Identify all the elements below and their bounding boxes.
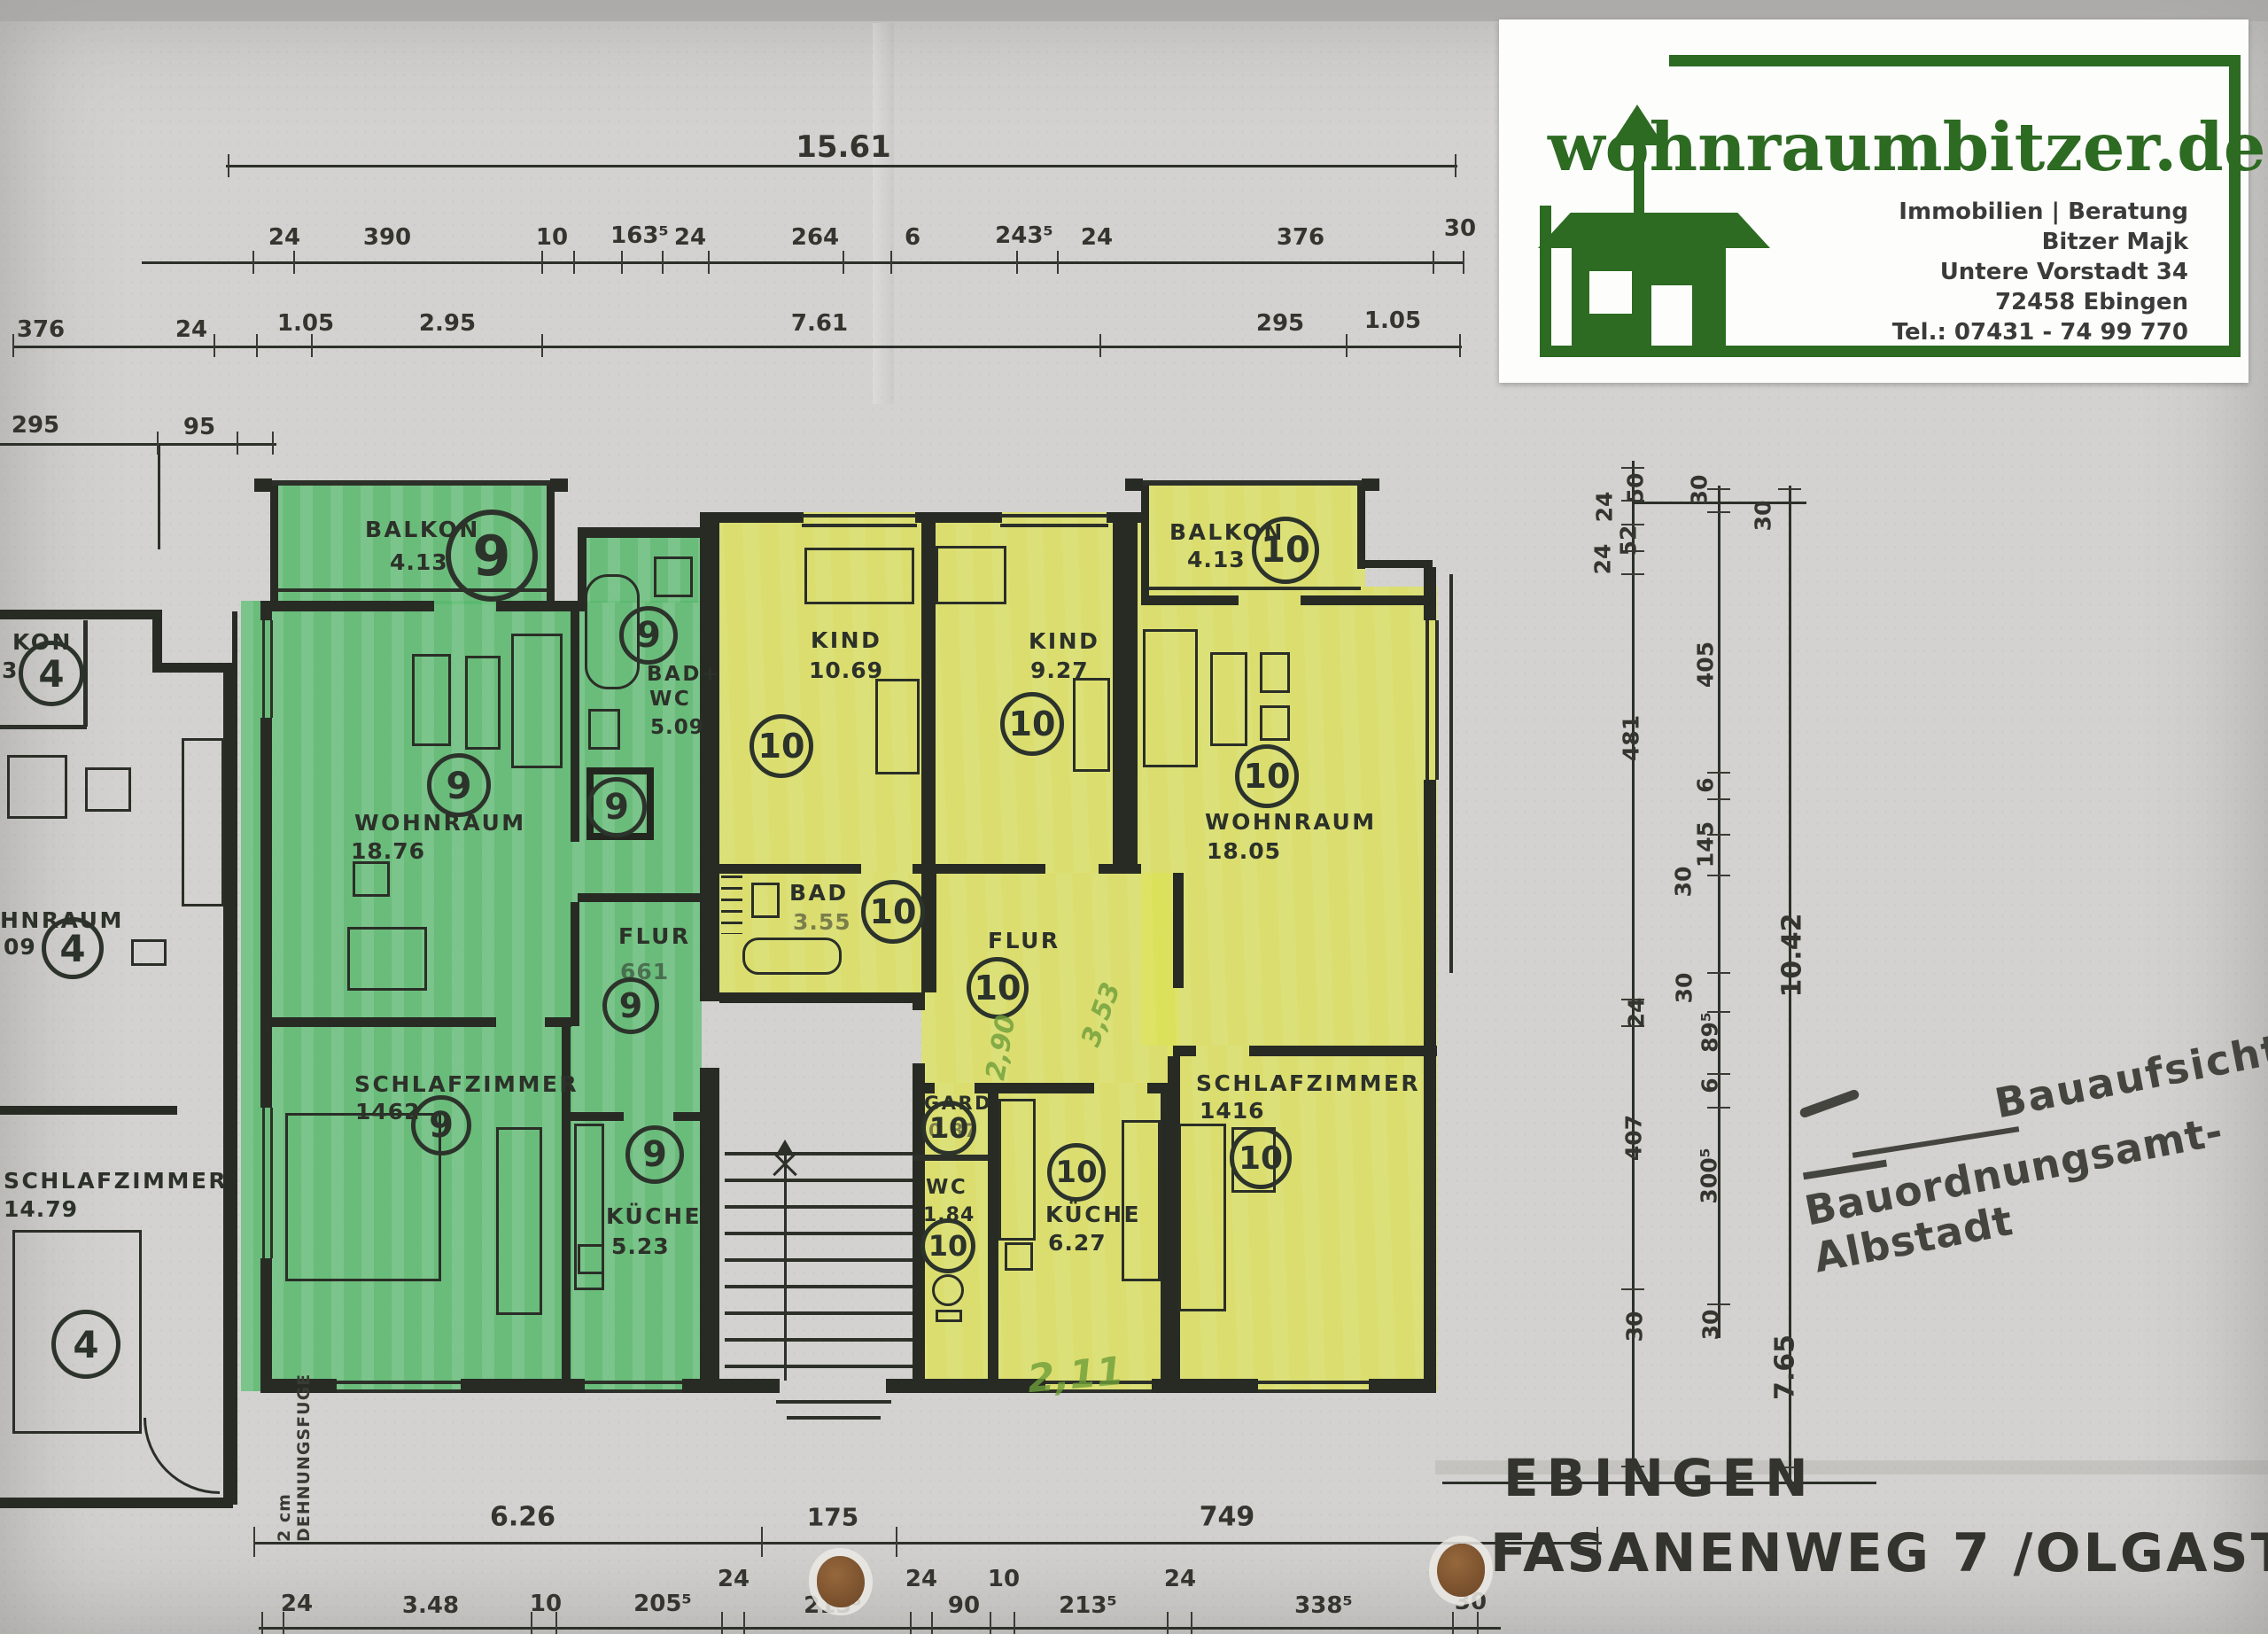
balcony-edge bbox=[1148, 587, 1361, 590]
room-area-schlafzimmer-10: 1416 bbox=[1200, 1098, 1265, 1124]
unit-badge-10: 10 bbox=[750, 714, 813, 778]
stair-tread bbox=[725, 1205, 913, 1209]
dim-label: 295 bbox=[1256, 310, 1304, 337]
wall bbox=[921, 873, 936, 992]
chair bbox=[1260, 652, 1290, 693]
room-area-wohnraum-9: 18.76 bbox=[351, 838, 425, 864]
stair-tread bbox=[725, 1258, 913, 1262]
window bbox=[337, 1389, 461, 1393]
wall bbox=[1173, 1046, 1196, 1056]
logo-contact-name: Bitzer Majk bbox=[1816, 227, 2188, 257]
bed bbox=[804, 548, 914, 604]
dim-tick bbox=[1707, 772, 1730, 774]
entry-step bbox=[787, 1416, 881, 1420]
washbasin bbox=[654, 556, 693, 597]
toilet bbox=[932, 1274, 964, 1306]
dim-tick bbox=[931, 1612, 933, 1634]
kitchen-counter bbox=[998, 1099, 1036, 1241]
duct-wall bbox=[1113, 523, 1138, 873]
wall bbox=[1301, 595, 1429, 605]
wall bbox=[1424, 780, 1436, 1391]
window bbox=[270, 620, 273, 718]
wall bbox=[921, 523, 936, 873]
room-label-flur-9: FLUR bbox=[618, 923, 691, 949]
furniture bbox=[131, 939, 167, 966]
room-area-schlafzimmer-4: 14.79 bbox=[4, 1196, 78, 1222]
room-area-schlafzimmer-9: 1462 bbox=[355, 1099, 421, 1124]
floor-plan-scan: 4 4 4 9 9 9 9 9 9 9 10 10 10 10 10 10 10… bbox=[0, 0, 2268, 1634]
dim-label: 749 bbox=[1200, 1502, 1255, 1533]
sofa bbox=[465, 656, 501, 750]
dim-label: 24 bbox=[718, 1566, 750, 1592]
dim-label: 90 bbox=[948, 1592, 980, 1619]
toilet bbox=[588, 709, 620, 750]
dim-tick bbox=[237, 432, 238, 455]
wall bbox=[260, 601, 434, 611]
room-area-kueche-9: 5.23 bbox=[611, 1233, 670, 1259]
dim-line bbox=[1718, 486, 1720, 1338]
room-area-balkon-10: 4.13 bbox=[1187, 547, 1246, 572]
dim-label: 30 bbox=[1444, 215, 1476, 242]
dim-label: 24 bbox=[1592, 492, 1618, 523]
dim-label: 24 bbox=[175, 316, 207, 343]
entry-step bbox=[776, 1400, 891, 1404]
door-arc bbox=[144, 1418, 220, 1494]
hole-punch bbox=[1437, 1544, 1485, 1597]
washbasin bbox=[751, 883, 780, 918]
window bbox=[1000, 514, 1108, 517]
dim-tick bbox=[157, 432, 159, 455]
dim-label: 6 bbox=[1693, 777, 1719, 792]
dim-tick bbox=[1621, 1288, 1644, 1290]
dim-tick bbox=[1459, 334, 1461, 357]
room-area-kind-1: 10.69 bbox=[809, 657, 883, 683]
logo-house-icon bbox=[1538, 213, 1770, 248]
kitchen-counter bbox=[1122, 1120, 1161, 1281]
wall bbox=[152, 663, 234, 673]
room-area-kueche-10: 6.27 bbox=[1048, 1230, 1107, 1256]
dim-label: 145 bbox=[1693, 821, 1719, 868]
balcony-cap bbox=[550, 479, 568, 492]
logo-frame bbox=[2229, 55, 2241, 357]
wall bbox=[578, 527, 703, 538]
dim-label: 1.05 bbox=[277, 310, 334, 337]
wall bbox=[1369, 1379, 1436, 1393]
room-label-balkon-10: BALKON bbox=[1169, 519, 1285, 545]
cabinet bbox=[511, 634, 563, 768]
dim-label: 481 bbox=[1619, 715, 1644, 761]
dim-label: 10.42 bbox=[1777, 914, 1808, 998]
room-area-bad-10: 3.55 bbox=[793, 909, 851, 935]
dim-tick bbox=[1707, 511, 1730, 513]
unit-badge-10: 10 bbox=[967, 957, 1029, 1019]
room-label-bad-10: BAD bbox=[789, 880, 849, 906]
dim-tick bbox=[1707, 875, 1730, 876]
wall bbox=[719, 512, 804, 523]
dim-tick bbox=[1191, 1612, 1192, 1634]
room-label-flur-10: FLUR bbox=[988, 928, 1060, 953]
logo-street: Untere Vorstadt 34 bbox=[1816, 257, 2188, 287]
dim-line bbox=[13, 346, 1462, 348]
dim-tick bbox=[252, 251, 254, 274]
dim-tick bbox=[1778, 488, 1801, 490]
chair bbox=[353, 861, 390, 897]
unit-badge-4: 4 bbox=[51, 1310, 120, 1379]
dim-tick bbox=[743, 1612, 745, 1634]
wall bbox=[571, 1112, 624, 1121]
dim-tick bbox=[621, 251, 623, 274]
window bbox=[270, 1108, 273, 1258]
toilet-tank bbox=[936, 1310, 962, 1322]
dim-label-total: 15.61 bbox=[796, 129, 891, 165]
dim-tick bbox=[708, 251, 710, 274]
unit-badge-10: 10 bbox=[1000, 692, 1064, 756]
wall bbox=[260, 1017, 496, 1027]
room-label-wohnraum-10: WOHNRAUM bbox=[1205, 809, 1377, 835]
room-label-schlafzimmer-9: SCHLAFZIMMER bbox=[354, 1071, 579, 1097]
dim-label: 390 bbox=[363, 224, 411, 251]
roof-edge bbox=[1449, 574, 1453, 973]
window bbox=[1000, 524, 1108, 527]
logo-address-block: Immobilien | Beratung Bitzer Majk Untere… bbox=[1816, 197, 2188, 347]
dim-label: 7.65 bbox=[1770, 1334, 1801, 1400]
dim-tick bbox=[573, 251, 575, 274]
dim-label: 6 bbox=[905, 224, 920, 251]
dim-tick bbox=[541, 251, 543, 274]
room-label-bad-9-wc: WC bbox=[649, 688, 691, 711]
stair-tread bbox=[725, 1232, 913, 1235]
room-label-wohnraum-4: HNRAUM bbox=[0, 907, 124, 933]
dim-line bbox=[0, 443, 276, 446]
sofa bbox=[412, 654, 451, 746]
dim-label: 163⁵ bbox=[610, 222, 669, 249]
approval-stamp-line2: Bauordnungsamt-Albstadt bbox=[1801, 1096, 2268, 1281]
logo-house-window bbox=[1589, 271, 1632, 314]
wall bbox=[1141, 595, 1239, 605]
dim-tick bbox=[1463, 251, 1464, 274]
wall bbox=[0, 610, 161, 619]
dim-label: 10 bbox=[988, 1566, 1020, 1592]
dim-tick bbox=[228, 154, 229, 177]
dim-tick bbox=[253, 1527, 255, 1557]
balcony-wall bbox=[1141, 480, 1149, 598]
titleblock-city: EBINGEN bbox=[1503, 1448, 1816, 1508]
wall bbox=[260, 718, 272, 1108]
wardrobe bbox=[496, 1127, 542, 1315]
wall bbox=[719, 992, 923, 1003]
wall bbox=[571, 902, 579, 1026]
logo-house-door bbox=[1651, 285, 1692, 346]
dim-label: 89⁵ bbox=[1697, 1012, 1723, 1053]
dim-label: 30 bbox=[1698, 1310, 1724, 1341]
wall bbox=[673, 1112, 702, 1121]
dim-tick bbox=[272, 432, 274, 455]
dim-label: 52 bbox=[1616, 525, 1642, 556]
wall bbox=[1357, 560, 1433, 568]
dim-line bbox=[1633, 502, 1806, 504]
dim-label: 2.95 bbox=[419, 310, 476, 337]
balcony-wall bbox=[547, 480, 555, 601]
dim-label: 30 bbox=[1622, 1311, 1648, 1342]
dim-line bbox=[259, 1627, 1501, 1630]
dim-line bbox=[254, 1542, 1602, 1545]
stair-tread bbox=[725, 1152, 913, 1155]
wall bbox=[571, 611, 579, 842]
room-label-bad-9: BAD+ bbox=[647, 663, 721, 686]
dim-tick bbox=[1452, 1612, 1454, 1634]
dim-tick bbox=[1707, 1107, 1730, 1109]
handwritten-note: 2,11 bbox=[1026, 1349, 1126, 1402]
dim-tick bbox=[1707, 798, 1730, 800]
wall bbox=[496, 601, 578, 611]
dim-label: 24 bbox=[281, 1591, 313, 1617]
dim-label: 213⁵ bbox=[1059, 1592, 1117, 1619]
room-area-gard-10: 0.87 bbox=[928, 1120, 978, 1141]
dim-label: 175 bbox=[807, 1503, 858, 1532]
room-label-wc-10: WC bbox=[926, 1176, 967, 1199]
dim-label: 24 bbox=[1624, 998, 1650, 1029]
room-area-bad-9: 5.09 bbox=[650, 716, 704, 739]
kitchen-sink bbox=[578, 1244, 604, 1274]
window bbox=[262, 1108, 265, 1258]
dim-label: 24 bbox=[905, 1566, 937, 1592]
dim-tick bbox=[1346, 334, 1348, 357]
unit-badge-10: 10 bbox=[920, 1218, 975, 1273]
cabinet bbox=[1210, 652, 1247, 746]
dim-tick bbox=[1621, 467, 1644, 469]
wall bbox=[915, 512, 1002, 523]
dim-label: 24 bbox=[1164, 1566, 1196, 1592]
dim-tick bbox=[293, 251, 295, 274]
balcony-wall bbox=[270, 480, 278, 601]
dim-label: 300⁵ bbox=[1697, 1148, 1722, 1203]
bed bbox=[936, 546, 1006, 604]
wardrobe bbox=[1143, 629, 1198, 767]
room-area-wc-10: 1.84 bbox=[923, 1204, 975, 1226]
logo-phone: Tel.: 07431 - 74 99 770 bbox=[1816, 317, 2188, 347]
room-area-wohnraum-4: 09 bbox=[4, 934, 36, 960]
room-label-schlafzimmer-4: SCHLAFZIMMER bbox=[4, 1168, 228, 1194]
window bbox=[585, 1389, 682, 1393]
window bbox=[802, 514, 917, 517]
stair-arrow-head bbox=[776, 1140, 794, 1155]
dim-tick bbox=[1455, 154, 1456, 177]
room-area-wohnraum-10: 18.05 bbox=[1207, 838, 1281, 864]
dim-tick bbox=[1621, 573, 1644, 575]
wall bbox=[886, 1379, 1045, 1393]
dim-label: 95 bbox=[183, 414, 215, 440]
wall bbox=[913, 1155, 988, 1161]
desk bbox=[875, 679, 920, 774]
dim-tick bbox=[761, 1527, 763, 1557]
stair-tread bbox=[725, 1311, 913, 1315]
paper-edge-top bbox=[0, 0, 2268, 21]
dim-label: 338⁵ bbox=[1294, 1592, 1353, 1619]
wall bbox=[1161, 1090, 1173, 1391]
balcony-cap bbox=[1125, 479, 1143, 491]
window bbox=[1258, 1381, 1369, 1384]
dim-label: 376 bbox=[1277, 224, 1324, 251]
dim-tick bbox=[256, 334, 258, 357]
dim-tick bbox=[541, 334, 543, 357]
unit-badge-10: 10 bbox=[1235, 744, 1299, 808]
dim-label: 30 bbox=[1687, 475, 1713, 506]
dim-label: 50 bbox=[1623, 473, 1649, 504]
wall bbox=[913, 1063, 925, 1391]
room-area-balkon-4: 3 bbox=[2, 657, 18, 683]
dim-tick bbox=[214, 334, 215, 357]
window bbox=[337, 1381, 461, 1384]
radiator bbox=[721, 875, 742, 934]
hole-punch bbox=[817, 1556, 865, 1607]
dim-tick bbox=[990, 1612, 991, 1634]
room-area-kind-2: 9.27 bbox=[1030, 657, 1089, 683]
balcony-rail bbox=[270, 480, 554, 486]
dim-label: 1.05 bbox=[1364, 307, 1421, 334]
logo-city: 72458 Ebingen bbox=[1816, 287, 2188, 317]
dim-tick bbox=[910, 1612, 912, 1634]
dim-tick bbox=[1014, 1612, 1015, 1634]
bed bbox=[1178, 1124, 1226, 1311]
joint-note-line: 2 cm bbox=[275, 1493, 294, 1542]
dim-label: 24 bbox=[1590, 544, 1616, 575]
balcony-rail bbox=[1141, 480, 1365, 486]
wall bbox=[260, 1258, 272, 1391]
dim-label: 295 bbox=[12, 412, 59, 439]
unit-badge-10: 10 bbox=[1047, 1143, 1106, 1202]
dim-tick bbox=[261, 1612, 263, 1634]
logo-title: wohnraumbitzer.de bbox=[1548, 108, 2203, 186]
stair-tread bbox=[725, 1179, 913, 1182]
dim-label: 407 bbox=[1621, 1115, 1647, 1161]
stair-tread bbox=[725, 1285, 913, 1288]
logo-frame bbox=[1540, 206, 1551, 357]
dim-tick bbox=[1099, 334, 1101, 357]
furniture bbox=[182, 738, 224, 906]
window bbox=[1425, 620, 1429, 780]
stair-direction-line bbox=[784, 1152, 787, 1381]
dim-label: 405 bbox=[1693, 642, 1719, 688]
dim-tick bbox=[1707, 1073, 1730, 1075]
dim-tick bbox=[896, 1527, 897, 1557]
room-label-gard-10: GARD bbox=[924, 1093, 992, 1114]
dim-line bbox=[142, 261, 1464, 264]
wall bbox=[1107, 512, 1141, 523]
stair-tread bbox=[725, 1365, 913, 1368]
logo-tagline: Immobilien | Beratung bbox=[1816, 197, 2188, 227]
party-wall bbox=[700, 512, 719, 1001]
wall bbox=[719, 864, 861, 874]
furniture bbox=[7, 755, 67, 819]
logo-frame bbox=[1669, 55, 2241, 66]
unit-badge-9: 9 bbox=[586, 777, 647, 837]
dim-line bbox=[226, 165, 1457, 167]
unit-badge-10: 10 bbox=[861, 880, 925, 944]
dim-tick bbox=[843, 251, 844, 274]
window bbox=[262, 620, 265, 718]
room-label-kind-2: KIND bbox=[1029, 628, 1099, 654]
dim-label: 30 bbox=[1672, 973, 1697, 1004]
joint-note-line: DEHNUNGSFUGE bbox=[294, 1373, 314, 1542]
party-wall bbox=[700, 1068, 719, 1391]
dim-label: 264 bbox=[791, 224, 839, 251]
dim-label: 243⁵ bbox=[995, 222, 1053, 249]
dim-tick bbox=[1433, 251, 1434, 274]
dim-tick bbox=[890, 251, 892, 274]
chair bbox=[1260, 705, 1290, 741]
dim-line bbox=[158, 443, 160, 549]
dim-tick bbox=[12, 334, 14, 357]
dim-tick bbox=[1167, 1612, 1169, 1634]
kitchen-sink bbox=[1005, 1242, 1033, 1271]
window bbox=[1258, 1389, 1369, 1393]
window bbox=[1435, 620, 1439, 780]
wall bbox=[1173, 873, 1184, 988]
dim-tick bbox=[1707, 1303, 1730, 1305]
window bbox=[585, 1381, 682, 1384]
dim-label: 7.61 bbox=[791, 310, 848, 337]
wall bbox=[578, 893, 702, 902]
wall bbox=[1249, 1046, 1437, 1056]
unit-badge-9: 9 bbox=[625, 1125, 684, 1184]
dim-label: 376 bbox=[17, 316, 65, 343]
apartment10-highlight-flur bbox=[921, 873, 1178, 1083]
dim-label: 30 bbox=[1751, 501, 1776, 532]
room-label-kind-1: KIND bbox=[811, 627, 882, 653]
wall bbox=[0, 1106, 177, 1115]
room-label-balkon-9: BALKON bbox=[365, 517, 480, 542]
dim-tick bbox=[721, 1612, 723, 1634]
unit-badge-9: 9 bbox=[619, 606, 678, 665]
unit-badge-9: 9 bbox=[602, 977, 659, 1034]
stair-tread bbox=[725, 1338, 913, 1342]
dim-tick bbox=[662, 251, 664, 274]
logo-card: wohnraumbitzer.de Immobilien | Beratung … bbox=[1499, 19, 2249, 383]
titleblock-street: FASANENWEG 7 /OLGASTR 1 bbox=[1490, 1522, 2268, 1584]
wall bbox=[1099, 864, 1141, 874]
dim-label: 30 bbox=[1671, 867, 1697, 898]
room-label-kueche-10: KÜCHE bbox=[1045, 1202, 1141, 1227]
dim-label: 24 bbox=[1081, 224, 1113, 251]
room-label-kueche-9: KÜCHE bbox=[606, 1203, 702, 1229]
dim-label: 3.48 bbox=[402, 1592, 459, 1619]
dim-label: 24 bbox=[674, 224, 706, 251]
dim-label: 6.26 bbox=[490, 1502, 555, 1533]
expansion-joint-note: 2 cm DEHNUNGSFUGE bbox=[275, 1338, 315, 1542]
wall bbox=[682, 1379, 780, 1393]
wall bbox=[988, 1090, 998, 1391]
unit-badge-9: 9 bbox=[427, 753, 491, 817]
dim-label: 205⁵ bbox=[633, 1591, 692, 1617]
room-area-balkon-9: 4.13 bbox=[390, 549, 448, 575]
balcony-rail bbox=[0, 725, 87, 729]
room-label-balkon-4: KON bbox=[12, 629, 73, 655]
room-label-schlafzimmer-10: SCHLAFZIMMER bbox=[1196, 1070, 1420, 1096]
dim-tick bbox=[311, 334, 313, 357]
balcony-cap bbox=[1362, 479, 1379, 491]
dim-tick bbox=[1707, 972, 1730, 974]
dim-tick bbox=[1057, 251, 1059, 274]
bathtub bbox=[742, 938, 842, 975]
room-label-wohnraum-9: WOHNRAUM bbox=[354, 810, 526, 836]
table bbox=[347, 927, 427, 991]
balcony-cap bbox=[254, 479, 272, 492]
wall bbox=[461, 1379, 585, 1393]
window bbox=[802, 524, 917, 527]
room-area-flur-9: 661 bbox=[620, 959, 669, 984]
expansion-joint-wall bbox=[232, 611, 237, 1505]
wall bbox=[913, 992, 925, 1010]
